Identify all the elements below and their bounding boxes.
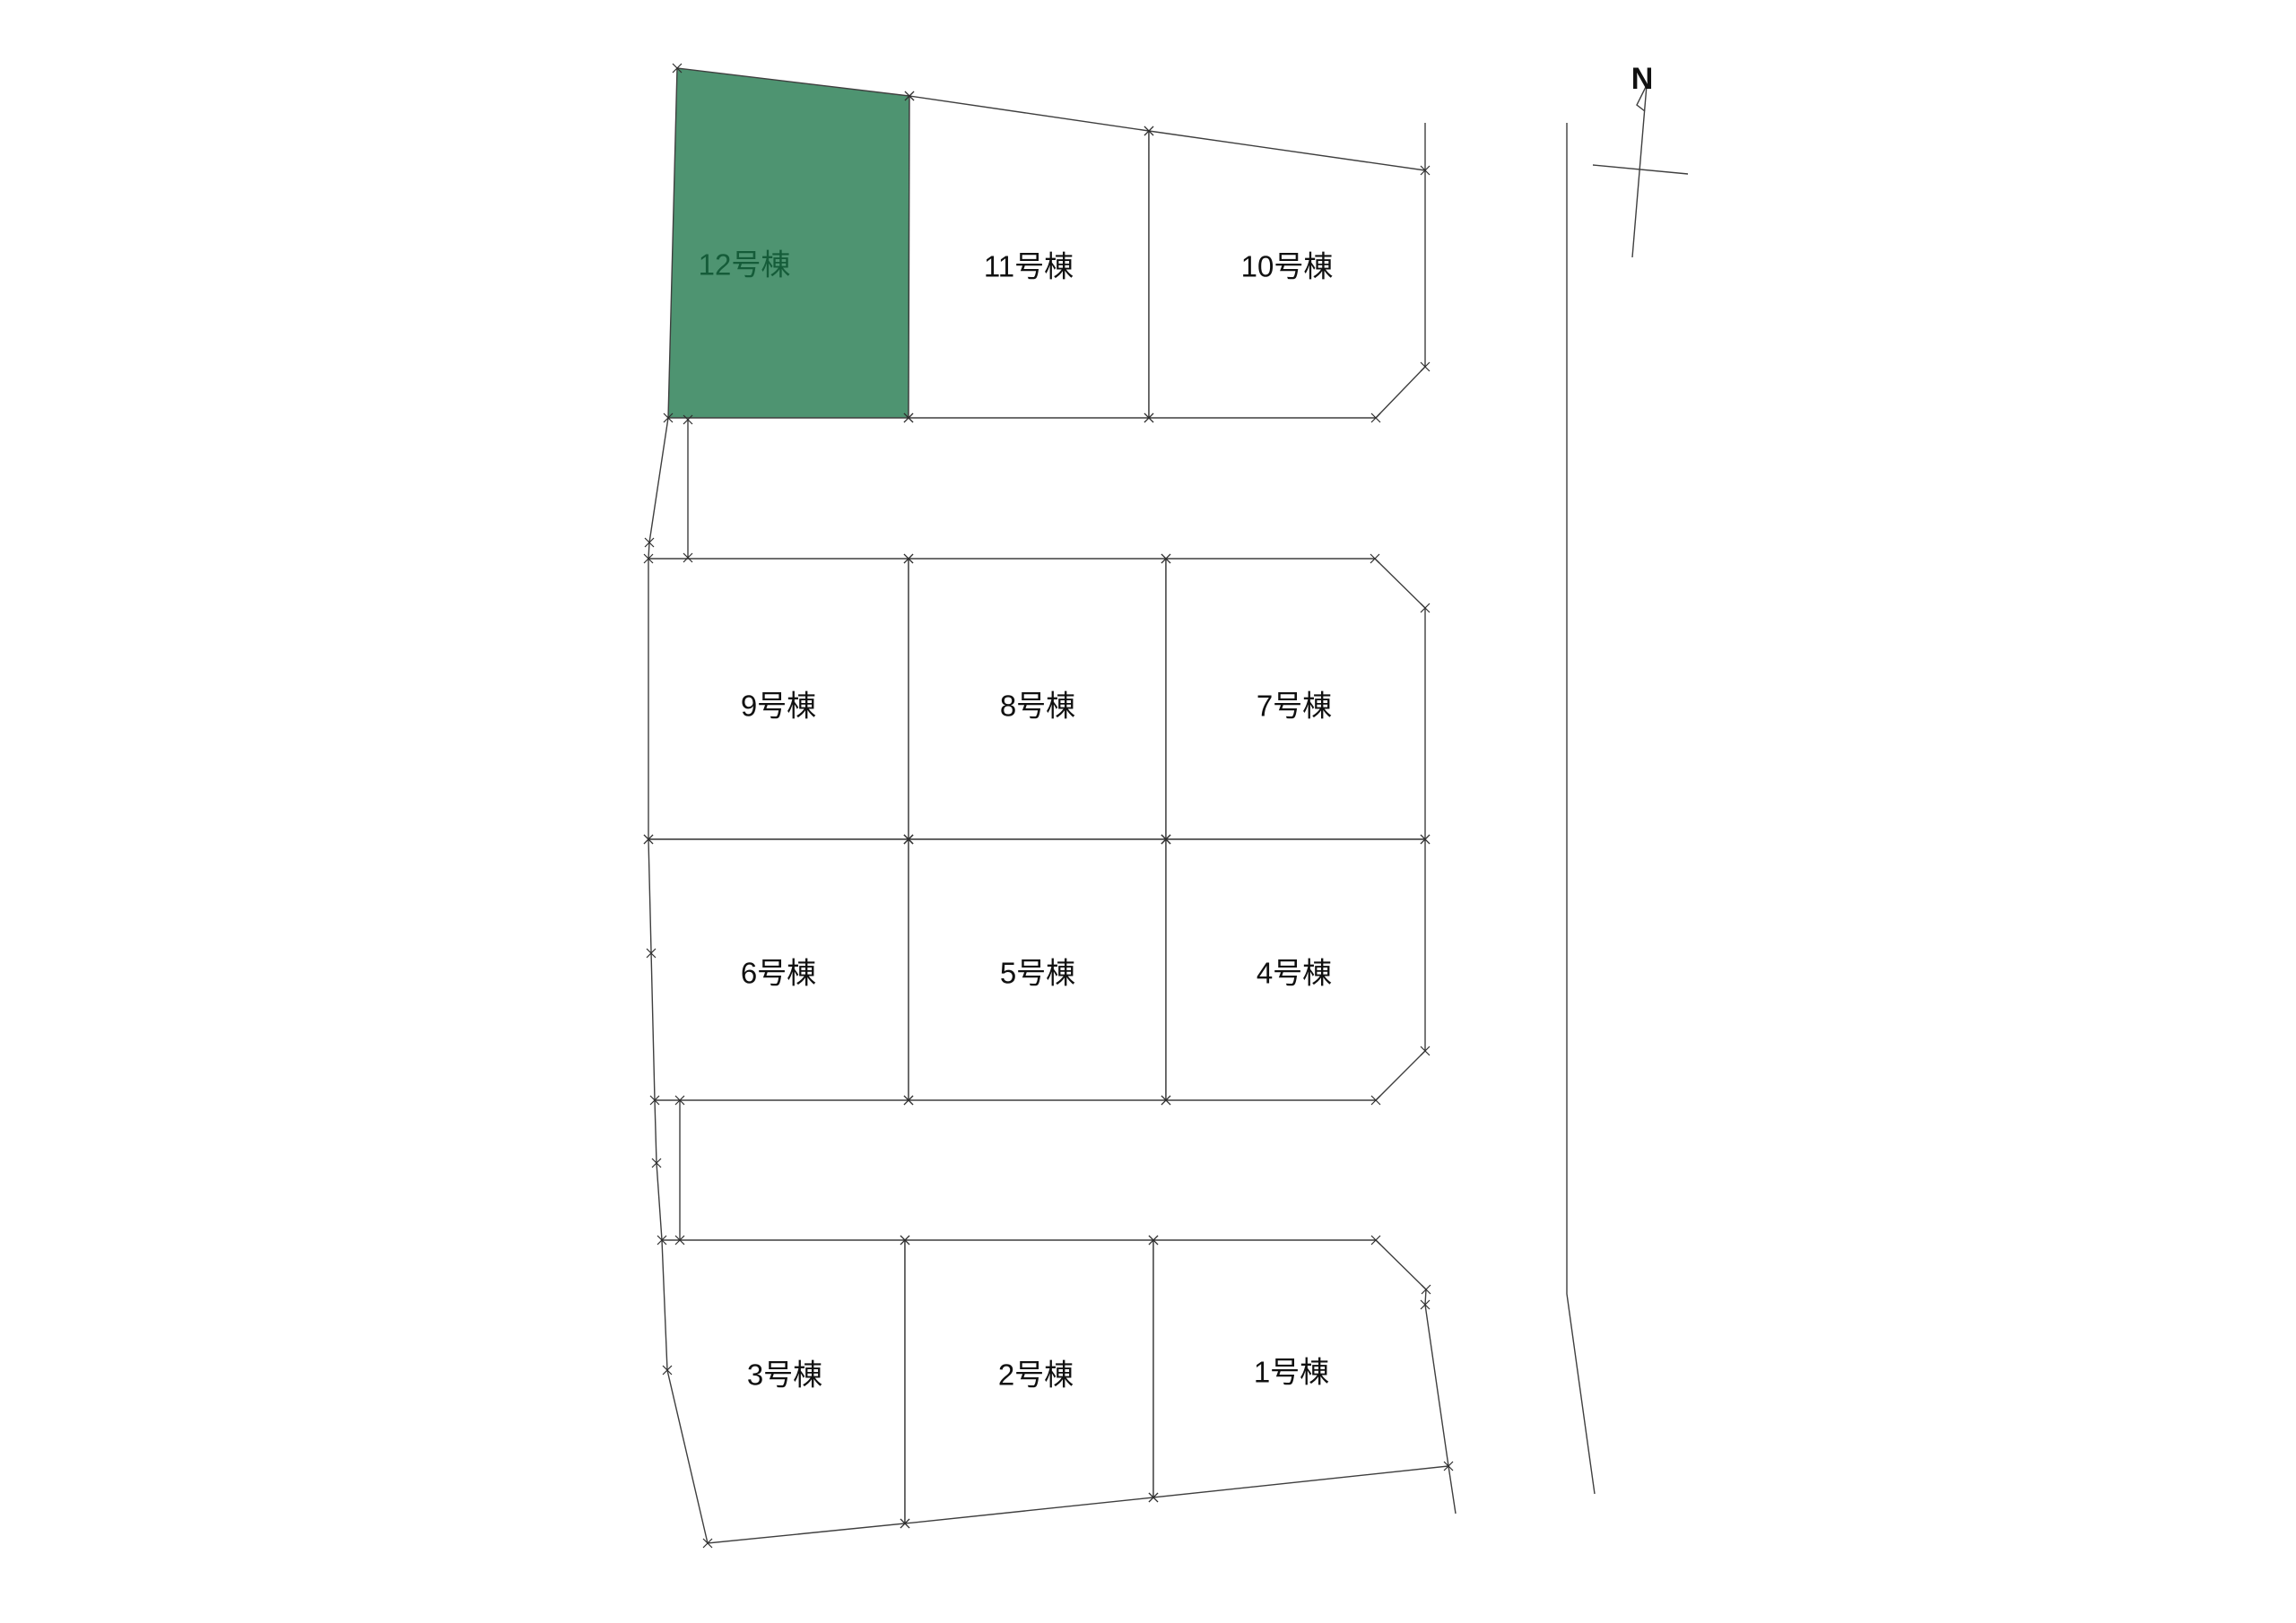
lot-9-label: 9号棟 bbox=[741, 690, 816, 723]
site-plan: 12号棟11号棟10号棟9号棟8号棟7号棟6号棟5号棟4号棟3号棟2号棟1号棟N bbox=[0, 0, 2296, 1623]
lot-3-label: 3号棟 bbox=[747, 1358, 822, 1392]
north-arrow: N bbox=[1593, 62, 1688, 257]
west-edge-upper-gap-line bbox=[648, 418, 668, 559]
lot-11-label: 11号棟 bbox=[984, 250, 1074, 283]
west-edge-lower-gap-line bbox=[655, 1100, 662, 1240]
north-label: N bbox=[1631, 62, 1654, 96]
southeast-stub-line bbox=[1448, 1466, 1456, 1514]
east-road-line bbox=[1567, 123, 1595, 1494]
lot-4-label: 4号棟 bbox=[1257, 957, 1332, 990]
lot-parcels bbox=[648, 68, 1448, 1543]
lot-10-label: 10号棟 bbox=[1241, 250, 1334, 283]
lot-8-label: 8号棟 bbox=[1000, 690, 1075, 723]
lot-7-label: 7号棟 bbox=[1257, 690, 1332, 723]
lot-5-label: 5号棟 bbox=[1000, 957, 1075, 990]
lot-3-region[interactable] bbox=[662, 1240, 905, 1543]
lot-2-label: 2号棟 bbox=[998, 1358, 1074, 1392]
lot-12-region[interactable] bbox=[668, 68, 909, 418]
site-plan-canvas: 12号棟11号棟10号棟9号棟8号棟7号棟6号棟5号棟4号棟3号棟2号棟1号棟N bbox=[0, 0, 2296, 1623]
lot-12-label: 12号棟 bbox=[699, 248, 791, 282]
lot-6-label: 6号棟 bbox=[741, 957, 816, 990]
lot-1-label: 1号棟 bbox=[1254, 1356, 1329, 1389]
